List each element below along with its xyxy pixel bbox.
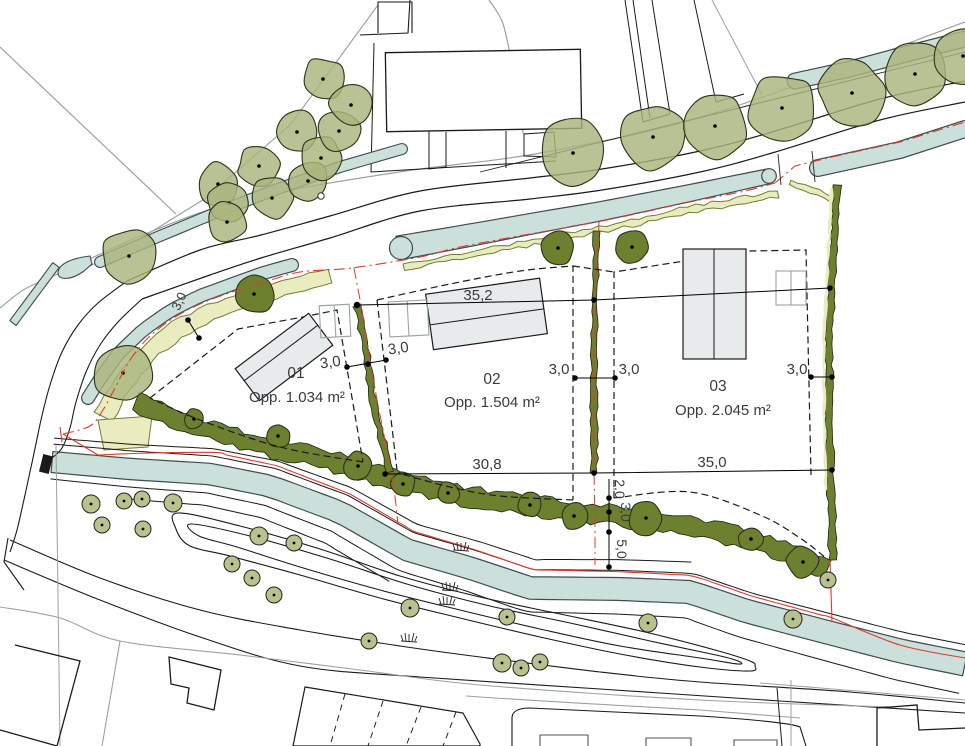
svg-text:5,0: 5,0 xyxy=(614,539,630,559)
svg-text:35,2: 35,2 xyxy=(463,287,492,304)
svg-text:3,0: 3,0 xyxy=(387,339,410,359)
svg-text:3,0: 3,0 xyxy=(619,361,640,378)
svg-text:30,8: 30,8 xyxy=(472,456,501,473)
svg-text:Opp. 2.045 m²: Opp. 2.045 m² xyxy=(675,402,771,419)
svg-text:3,0: 3,0 xyxy=(618,502,634,522)
svg-text:01: 01 xyxy=(287,365,304,382)
svg-text:3,0: 3,0 xyxy=(319,353,342,373)
svg-text:Opp. 1.504 m²: Opp. 1.504 m² xyxy=(444,394,540,411)
svg-text:2,0: 2,0 xyxy=(612,479,628,499)
svg-text:35,0: 35,0 xyxy=(697,454,726,471)
svg-text:3,0: 3,0 xyxy=(549,361,570,378)
svg-text:02: 02 xyxy=(483,371,500,388)
svg-text:3,0: 3,0 xyxy=(787,361,808,378)
svg-text:Opp. 1.034 m²: Opp. 1.034 m² xyxy=(249,389,345,406)
svg-text:03: 03 xyxy=(709,378,726,395)
